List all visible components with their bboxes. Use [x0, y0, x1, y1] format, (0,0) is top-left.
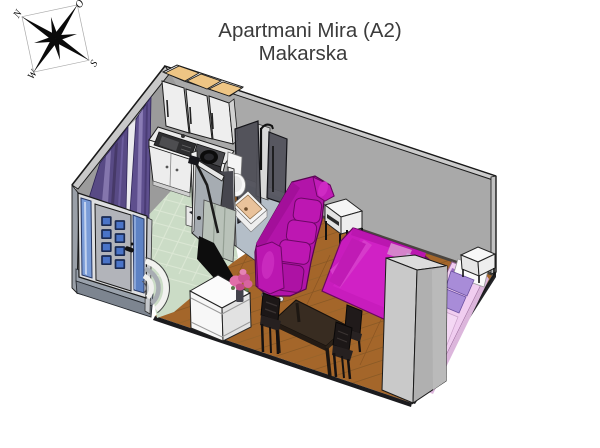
svg-text:Apartmani Mira (A2): Apartmani Mira (A2): [218, 19, 401, 42]
svg-text:N: N: [11, 8, 25, 22]
svg-text:S: S: [88, 58, 100, 69]
svg-text:Makarska: Makarska: [259, 42, 348, 65]
svg-text:O: O: [73, 0, 87, 11]
